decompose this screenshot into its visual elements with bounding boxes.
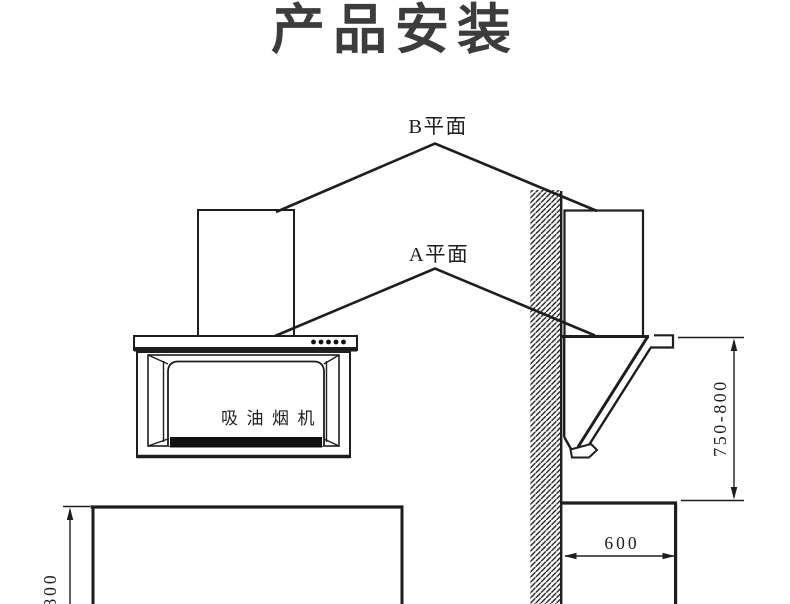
arrow-right-icon <box>663 553 676 560</box>
arrow-left-icon <box>564 553 577 560</box>
wall-section <box>530 190 561 604</box>
dimension-hood-height-label: 750-800 <box>710 379 730 457</box>
front-view-counter <box>91 507 404 604</box>
side-hood-slant-inner <box>586 348 651 451</box>
side-view-chimney <box>565 211 644 337</box>
side-hood-mount-tab <box>650 335 673 347</box>
plane-a-label: A平面 <box>409 244 469 266</box>
installation-diagram: 吸油烟机 B平面 A平面 <box>0 0 790 604</box>
side-view-hood <box>561 335 673 457</box>
front-view-chimney <box>198 210 294 336</box>
arrow-up-icon <box>67 508 73 521</box>
plane-b-label: B平面 <box>408 116 467 138</box>
front-view-hood: 吸油烟机 <box>134 336 357 457</box>
side-hood-slant-outer <box>578 337 648 447</box>
hood-glass-panel <box>168 362 324 447</box>
side-hood-foot <box>571 444 598 458</box>
arrow-down-icon <box>731 487 738 500</box>
installation-diagram-page: 产品安装 <box>0 0 790 604</box>
hood-name-label: 吸油烟机 <box>221 409 323 428</box>
hood-filter-strip <box>170 437 322 448</box>
dimension-hood-height: 750-800 <box>678 338 744 501</box>
arrow-up-icon <box>731 339 738 352</box>
dimension-counter-height: 800 <box>40 507 90 604</box>
wall-hatch-icon <box>530 190 561 604</box>
side-view-counter <box>561 503 677 604</box>
dimension-counter-depth: 600 <box>564 533 675 559</box>
dimension-counter-height-label: 800 <box>40 572 60 604</box>
dimension-counter-depth-label: 600 <box>604 533 639 553</box>
hood-top-panel-shadow <box>134 347 357 352</box>
